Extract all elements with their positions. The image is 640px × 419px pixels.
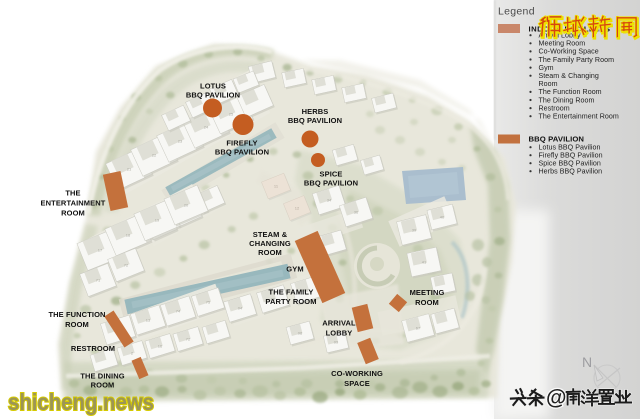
svg-text:39: 39: [412, 228, 417, 233]
svg-text:ARRIVAL: ARRIVAL: [322, 319, 356, 328]
svg-text:17: 17: [98, 248, 103, 253]
svg-text:34: 34: [327, 198, 332, 203]
svg-text:ROOM: ROOM: [258, 248, 282, 257]
svg-text:Steam & Changing: Steam & Changing: [539, 72, 599, 80]
svg-text:22: 22: [152, 153, 157, 158]
svg-text:13: 13: [146, 318, 151, 323]
svg-text:PARTY ROOM: PARTY ROOM: [265, 297, 316, 306]
svg-text:25: 25: [229, 112, 234, 117]
svg-text:12: 12: [295, 206, 300, 211]
svg-text:THE: THE: [65, 189, 80, 198]
svg-text:ROOM: ROOM: [61, 209, 85, 218]
svg-text:04: 04: [238, 306, 243, 311]
svg-text:MEETING: MEETING: [410, 288, 445, 297]
svg-text:36: 36: [354, 210, 359, 215]
svg-text:THE DINING: THE DINING: [80, 372, 124, 381]
svg-text:CO-WORKING: CO-WORKING: [331, 369, 383, 378]
svg-text:Legend: Legend: [498, 5, 535, 17]
svg-text:LOTUS: LOTUS: [200, 82, 226, 91]
svg-text:72: 72: [186, 337, 191, 342]
svg-text:BBQ PAVILION: BBQ PAVILION: [186, 91, 240, 100]
svg-text:SPICE: SPICE: [319, 170, 342, 179]
svg-text:Co-Working Space: Co-Working Space: [539, 48, 599, 56]
svg-text:09: 09: [334, 340, 339, 345]
svg-text:BBQ PAVILION: BBQ PAVILION: [304, 179, 358, 188]
svg-text:08: 08: [298, 331, 303, 336]
svg-text:GYM: GYM: [286, 264, 303, 273]
svg-text:STEAM &: STEAM &: [253, 230, 288, 239]
svg-text:The Entertainment Room: The Entertainment Room: [539, 113, 619, 121]
svg-text:Restroom: Restroom: [539, 104, 570, 112]
svg-text:19: 19: [155, 218, 160, 223]
svg-text:CHANGING: CHANGING: [249, 239, 291, 248]
svg-text:72: 72: [124, 263, 129, 268]
svg-text:74: 74: [176, 309, 181, 314]
svg-text:@: @: [546, 387, 566, 410]
svg-text:41: 41: [422, 260, 427, 265]
svg-text:24: 24: [204, 125, 209, 130]
svg-text:ROOM: ROOM: [415, 298, 439, 307]
svg-text:71: 71: [96, 278, 101, 283]
svg-text:BBQ PAVILION: BBQ PAVILION: [529, 135, 585, 144]
svg-text:21: 21: [127, 167, 132, 172]
svg-text:20: 20: [184, 203, 189, 208]
svg-text:23: 23: [178, 139, 183, 144]
svg-text:18: 18: [126, 233, 131, 238]
svg-text:HERBS: HERBS: [302, 107, 329, 116]
svg-text:Firefly BBQ Pavilion: Firefly BBQ Pavilion: [539, 152, 603, 160]
svg-text:RESTROOM: RESTROOM: [71, 344, 115, 353]
svg-text:The Function Room: The Function Room: [539, 88, 602, 96]
svg-text:FIREFLY: FIREFLY: [226, 139, 257, 148]
svg-text:Meeting Room: Meeting Room: [539, 40, 586, 48]
svg-text:LOBBY: LOBBY: [326, 329, 353, 338]
svg-text:Spice BBQ Pavilion: Spice BBQ Pavilion: [539, 160, 601, 168]
svg-text:Herbs BBQ Pavilion: Herbs BBQ Pavilion: [539, 168, 603, 176]
svg-text:40: 40: [440, 215, 445, 220]
svg-text:The Dining Room: The Dining Room: [539, 96, 595, 104]
svg-text:Gym: Gym: [539, 64, 554, 72]
svg-text:16: 16: [158, 344, 163, 349]
svg-text:75: 75: [206, 300, 211, 305]
svg-text:BBQ PAVILION: BBQ PAVILION: [215, 148, 269, 157]
svg-text:ENTERTAINMENT: ENTERTAINMENT: [41, 199, 106, 208]
svg-text:Room: Room: [539, 80, 558, 88]
svg-text:67: 67: [416, 326, 421, 331]
svg-text:ROOM: ROOM: [65, 320, 89, 329]
svg-text:N: N: [582, 354, 592, 370]
svg-text:The Family Party Room: The Family Party Room: [539, 56, 615, 64]
svg-text:shicheng.news: shicheng.news: [8, 389, 154, 415]
svg-text:THE FAMILY: THE FAMILY: [269, 288, 314, 297]
svg-text:THE FUNCTION: THE FUNCTION: [48, 310, 105, 319]
svg-text:BBQ PAVILION: BBQ PAVILION: [288, 116, 342, 125]
svg-text:Lotus BBQ Pavilion: Lotus BBQ Pavilion: [539, 144, 601, 152]
svg-text:SPACE: SPACE: [344, 379, 370, 388]
